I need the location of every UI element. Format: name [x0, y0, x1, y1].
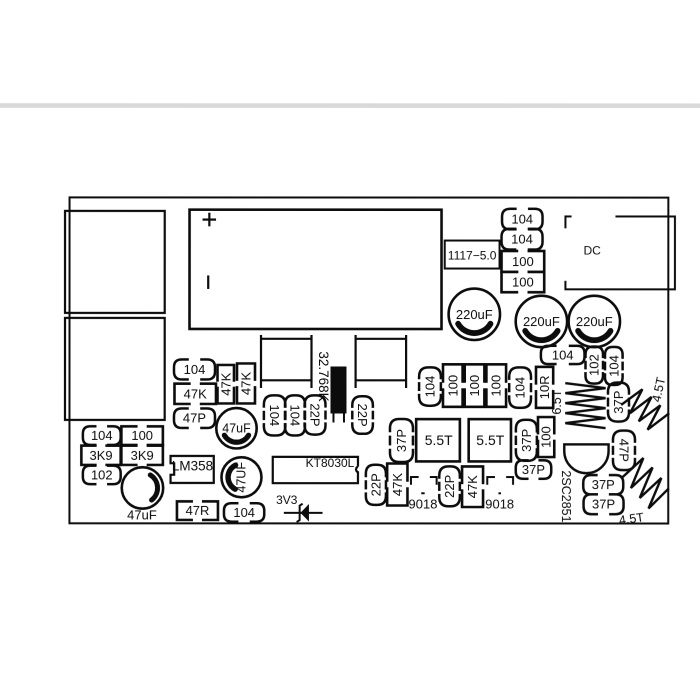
svg-text:100: 100: [489, 375, 504, 397]
svg-text:47K: 47K: [465, 475, 480, 498]
svg-text:104: 104: [513, 377, 528, 399]
svg-text:3K9: 3K9: [131, 448, 154, 463]
svg-text:100: 100: [131, 428, 153, 443]
svg-text:220uF: 220uF: [523, 314, 560, 329]
svg-text:37P: 37P: [519, 429, 534, 452]
svg-text:104: 104: [511, 232, 533, 247]
svg-text:3V3: 3V3: [276, 493, 298, 507]
svg-text:47UF: 47UF: [234, 462, 248, 493]
svg-text:100: 100: [512, 254, 534, 269]
svg-text:5.5T: 5.5T: [476, 432, 504, 448]
svg-text:100: 100: [539, 426, 554, 448]
svg-text:3K9: 3K9: [89, 448, 112, 463]
svg-text:47K: 47K: [390, 473, 405, 496]
svg-text:100: 100: [512, 275, 534, 290]
svg-text:47uF: 47uF: [222, 421, 251, 435]
svg-text:9018: 9018: [485, 497, 514, 512]
svg-text:22P: 22P: [308, 403, 323, 426]
svg-text:104: 104: [552, 347, 574, 362]
svg-text:100: 100: [467, 375, 482, 397]
svg-text:104: 104: [184, 362, 206, 377]
svg-text:47K: 47K: [184, 386, 207, 401]
svg-text:47K: 47K: [218, 372, 233, 395]
svg-text:22P: 22P: [442, 475, 457, 498]
svg-text:104: 104: [422, 376, 437, 398]
svg-text:102: 102: [91, 467, 113, 482]
svg-text:DC: DC: [584, 244, 602, 258]
svg-text:47R: 47R: [186, 503, 210, 518]
svg-text:LM358: LM358: [172, 459, 213, 474]
svg-text:104: 104: [287, 405, 302, 427]
svg-text:1117−5.0: 1117−5.0: [448, 248, 497, 262]
svg-text:37P: 37P: [592, 497, 615, 512]
svg-text:9018: 9018: [408, 497, 437, 512]
svg-text:104: 104: [511, 212, 533, 227]
svg-text:37P: 37P: [522, 462, 545, 477]
svg-text:104: 104: [91, 428, 113, 443]
svg-text:KT8030L: KT8030L: [306, 456, 355, 470]
svg-text:6.5T: 6.5T: [550, 389, 564, 414]
svg-text:220uF: 220uF: [576, 314, 613, 329]
svg-text:37P: 37P: [394, 429, 409, 452]
svg-text:104: 104: [606, 355, 621, 377]
svg-text:37P: 37P: [592, 477, 615, 492]
svg-text:104: 104: [233, 505, 255, 520]
svg-text:104: 104: [267, 405, 282, 427]
svg-text:47K: 47K: [238, 372, 253, 395]
svg-text:32.768K: 32.768K: [316, 351, 331, 401]
svg-text:47uF: 47uF: [127, 507, 157, 522]
svg-text:22P: 22P: [355, 404, 370, 427]
svg-text:100: 100: [445, 375, 460, 397]
svg-text:2SC2851: 2SC2851: [559, 470, 573, 522]
svg-text:22P: 22P: [368, 473, 383, 496]
svg-text:47P: 47P: [183, 411, 206, 426]
svg-text:5.5T: 5.5T: [425, 432, 453, 448]
svg-text:220uF: 220uF: [456, 307, 493, 322]
svg-text:47P: 47P: [616, 439, 631, 462]
svg-text:102: 102: [587, 354, 602, 376]
